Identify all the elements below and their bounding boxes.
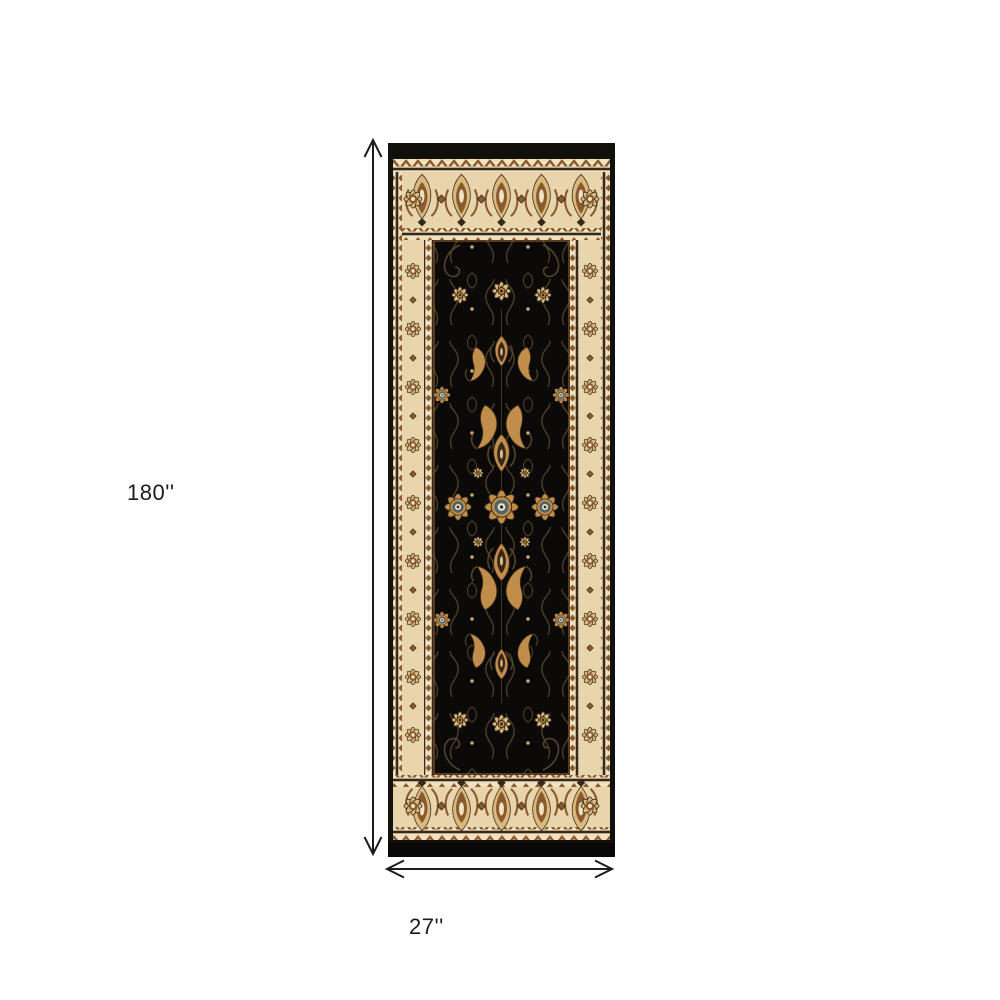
height-dimension-label: 180'' (127, 482, 175, 504)
rug-field (433, 240, 570, 775)
product-photo-canvas: 180'' 27'' (0, 0, 1000, 1000)
width-dimension-label: 27'' (409, 916, 444, 938)
width-dimension-arrow (387, 861, 612, 878)
rug-runner-image (388, 143, 615, 857)
height-dimension-arrow (365, 140, 382, 854)
